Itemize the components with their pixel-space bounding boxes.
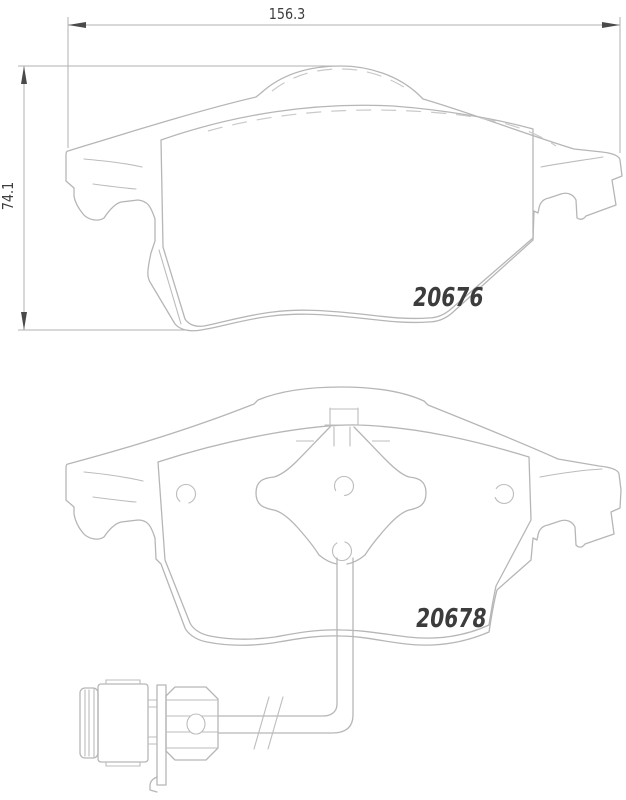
backplate-left-hole <box>177 485 196 504</box>
chamfer-line-left <box>159 250 181 324</box>
brake-pad-technical-drawing: 156.3 74.1 20676 <box>0 0 626 800</box>
connector-body-tabs <box>106 680 140 766</box>
left-ear-detail-lines <box>84 472 143 502</box>
wire-break-marks <box>254 697 283 749</box>
connector-bracket-foot <box>150 777 157 792</box>
backplate-right-hole <box>495 485 514 504</box>
sensor-connector <box>80 680 218 792</box>
height-dimension-label: 74.1 <box>0 182 17 210</box>
connector-bracket <box>157 685 166 785</box>
right-ear-detail-line <box>540 469 602 477</box>
hidden-edge-dome <box>272 69 410 91</box>
part-number-inner-pad: 20678 <box>414 603 489 634</box>
left-ear-detail-lines <box>84 159 142 189</box>
pad-inner-view: 20678 <box>66 387 621 645</box>
connector-end-cap-ridges <box>85 689 94 757</box>
pad-outer-view: 20676 <box>66 66 622 331</box>
spring-left-arm <box>256 427 337 564</box>
connector-body <box>98 684 148 762</box>
arrow-up-icon <box>21 66 27 84</box>
connector-pins <box>148 700 157 744</box>
wear-sensor <box>80 558 353 792</box>
spring-top-tab <box>325 408 363 446</box>
arrow-down-icon <box>21 312 27 330</box>
part-number-outer-pad: 20676 <box>411 282 486 313</box>
arrow-left-icon <box>68 22 86 28</box>
hidden-edge-face <box>208 110 556 146</box>
spring-bottom-boss <box>333 542 352 561</box>
right-ear-detail-line <box>541 157 603 167</box>
width-dimension-label: 156.3 <box>269 6 305 23</box>
drawing-canvas: 156.3 74.1 20676 <box>0 0 626 800</box>
spring-right-arm <box>347 427 426 564</box>
dimension-width: 156.3 <box>68 6 620 153</box>
spring-center-hole <box>335 477 354 496</box>
arrow-right-icon <box>602 22 620 28</box>
